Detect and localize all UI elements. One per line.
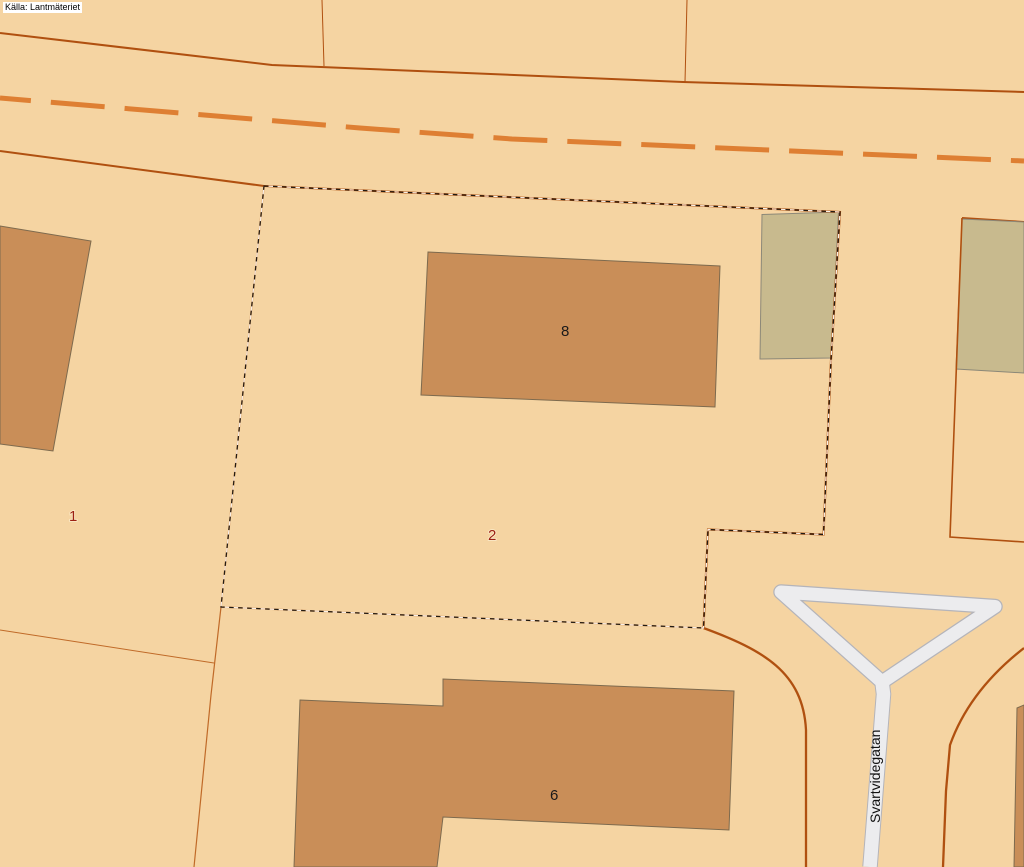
- svg-text:8: 8: [561, 323, 569, 340]
- svg-text:2: 2: [488, 527, 496, 544]
- svg-text:6: 6: [550, 787, 558, 804]
- svg-text:1: 1: [69, 508, 77, 525]
- svg-text:Svartvidegatan: Svartvidegatan: [867, 730, 883, 823]
